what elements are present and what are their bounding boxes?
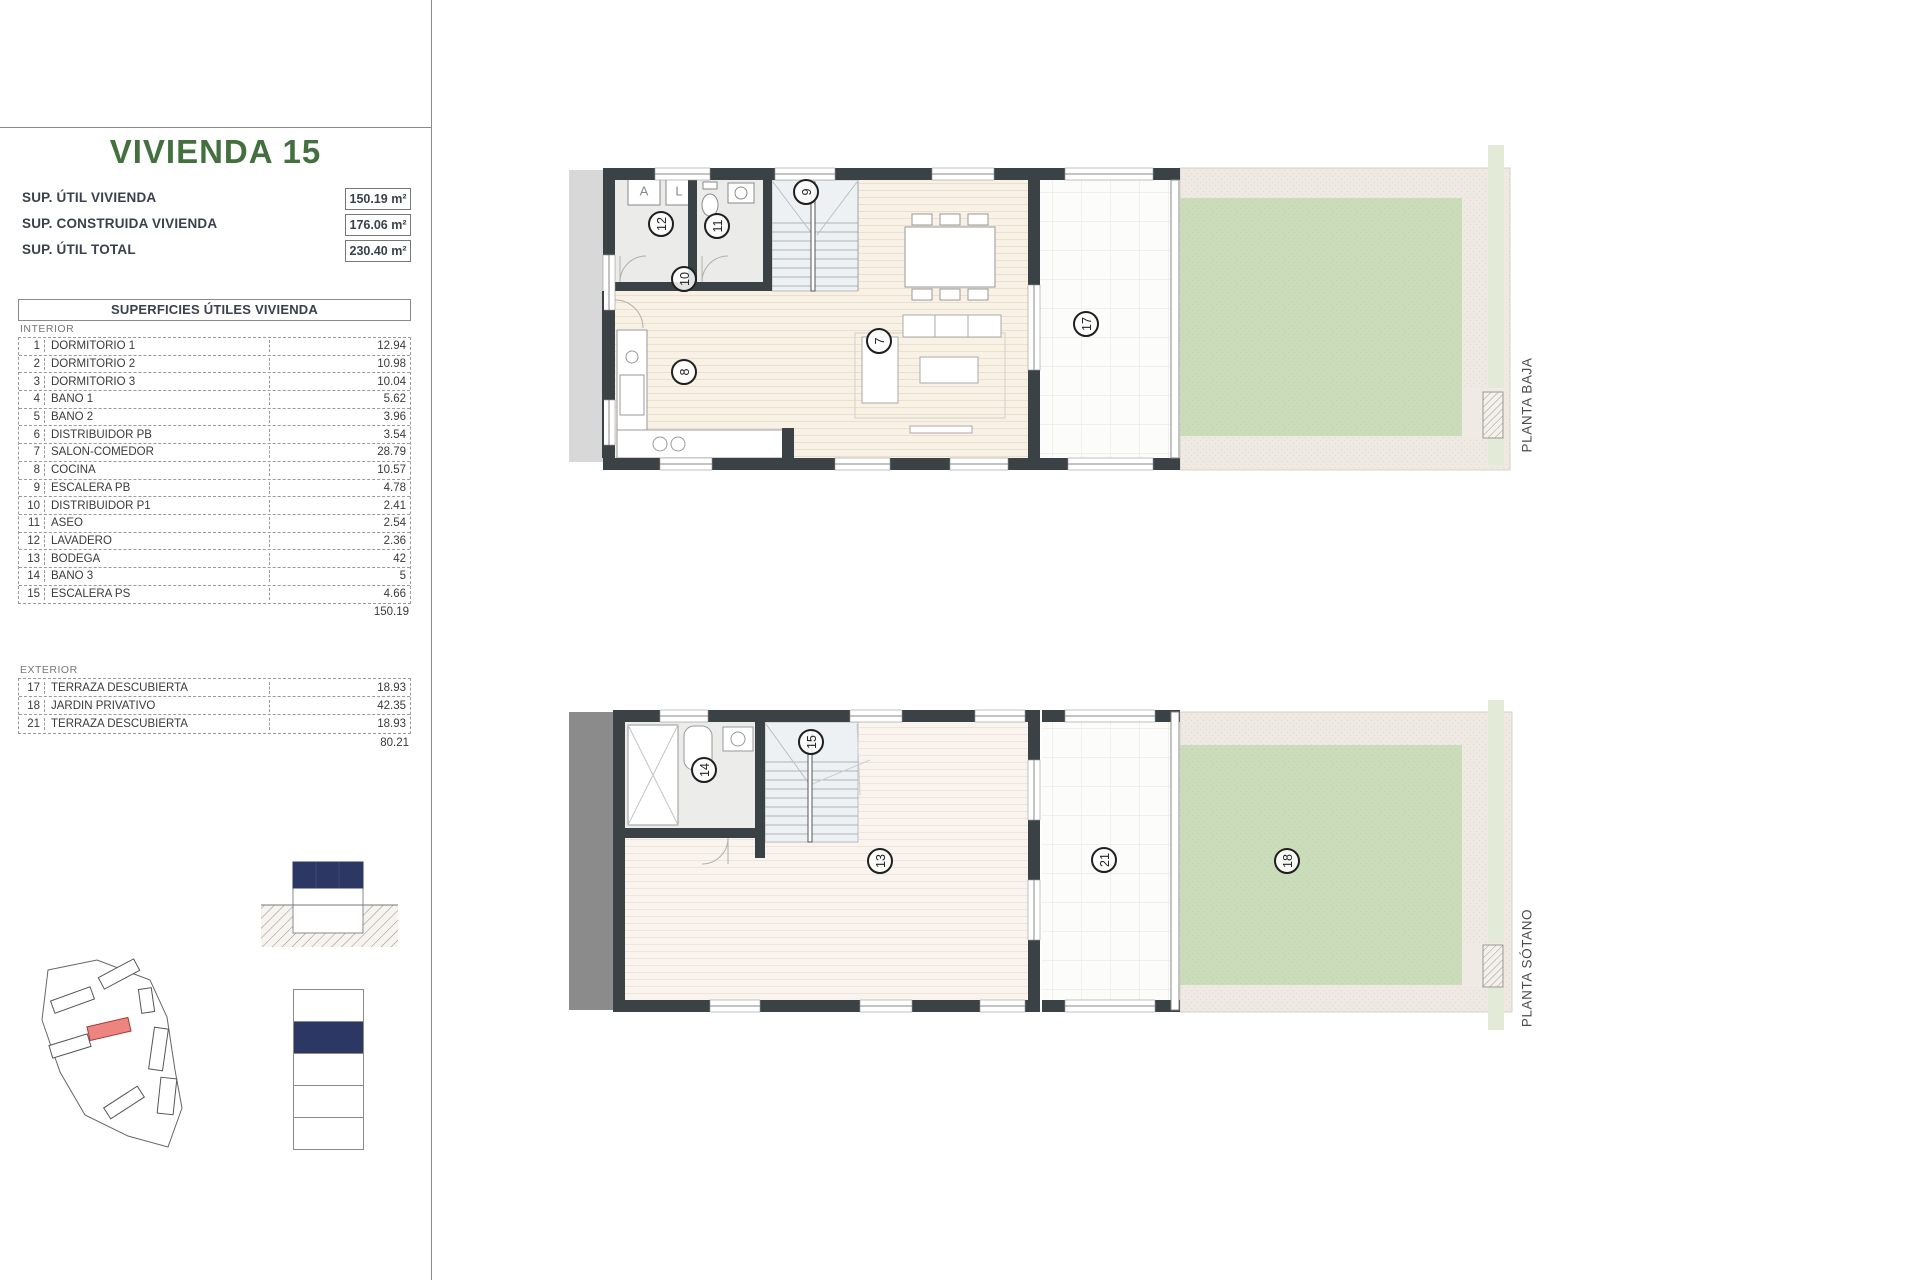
table-row: 5BAÑO 23.96 [19,409,410,427]
room-area: 3.54 [270,429,410,441]
dining-set [905,214,995,300]
room-area: 18.93 [270,682,410,694]
room-name: TERRAZA DESCUBIERTA [45,682,270,694]
row-number: 18 [19,700,45,712]
room-marker-14: 14 [691,757,717,783]
table-row: 7SALÓN-COMEDOR28.79 [19,444,410,462]
header-divider [0,127,431,128]
row-number: 4 [19,393,45,405]
table-row: 2DORMITORIO 210.98 [19,356,410,374]
summary-value-total: 230.40 m² [345,240,411,262]
hatched-block [1483,945,1503,987]
surfaces-table-header: SUPERFICIES ÚTILES VIVIENDA [18,299,411,321]
room-area: 3.96 [270,411,410,423]
section-highlight-floor [293,862,363,888]
table-row: 8COCINA10.57 [19,462,410,480]
washer-label: A [640,184,649,199]
room-name: DORMITORIO 2 [45,358,270,370]
terrace-floor [1040,180,1180,458]
room-name: COCINA [45,464,270,476]
exterior-total: 80.21 [18,737,413,749]
hatched-block [1483,392,1503,438]
table-row: 21TERRAZA DESCUBIERTA18.93 [19,715,410,733]
plan-sheet: VIVIENDA 15 SUP. ÚTIL VIVIENDA SUP. CONS… [0,0,1920,1280]
room-area: 42 [270,553,410,565]
summary-label-construida: SUP. CONSTRUIDA VIVIENDA [22,216,217,231]
garden-area [1173,745,1462,985]
room-marker-12: 12 [648,211,674,237]
row-number: 5 [19,411,45,423]
laundry-label: L [675,184,682,199]
table-row: 11ASEO2.54 [19,515,410,533]
table-row: 12LAVADERO2.36 [19,533,410,551]
room-area: 10.57 [270,464,410,476]
room-area: 18.93 [270,718,410,730]
planta-sotano-label: PLANTA SÓTANO [1520,909,1535,1027]
room-name: DISTRIBUIDOR PB [45,429,270,441]
exterior-section-label: EXTERIOR [20,664,78,676]
table-row: 3DORMITORIO 310.04 [19,373,410,391]
room-marker-15: 15 [798,729,824,755]
room-marker-10: 10 [671,266,697,292]
row-number: 6 [19,429,45,441]
table-row: 15ESCALERA PS4.66 [19,586,410,604]
garden-area [1173,198,1462,436]
summary-label-util: SUP. ÚTIL VIVIENDA [22,190,156,205]
terrace-balustrade [1171,712,1179,1010]
row-number: 17 [19,682,45,694]
room-name: BAÑO 2 [45,411,270,423]
room-area: 5.62 [270,393,410,405]
room-name: ESCALERA PB [45,482,270,494]
room-area: 4.66 [270,588,410,600]
room-marker-11: 11 [704,213,730,239]
row-number: 9 [19,482,45,494]
summary-value-construida: 176.06 m² [345,214,411,236]
row-number: 14 [19,570,45,582]
table-row: 14BAÑO 35 [19,568,410,586]
room-name: LAVADERO [45,535,270,547]
row-number: 13 [19,553,45,565]
site-plan-diagram [28,952,193,1162]
room-name: ESCALERA PS [45,588,270,600]
table-row: 6DISTRIBUIDOR PB3.54 [19,426,410,444]
table-row: 13BODEGA42 [19,550,410,568]
earth-strip [569,712,613,1010]
room-area: 42.35 [270,700,410,712]
room-marker-9: 9 [793,179,819,205]
highlighted-floor-cell [294,1022,364,1054]
table-row: 10DISTRIBUIDOR P12.41 [19,497,410,515]
room-area: 5 [270,570,410,582]
room-name: BAÑO 1 [45,393,270,405]
room-marker-17: 17 [1073,311,1099,337]
floor-stack-diagram [292,988,366,1152]
planta-baja-label: PLANTA BAJA [1520,358,1535,453]
row-number: 11 [19,517,45,529]
room-name: ASEO [45,517,270,529]
interior-section-label: INTERIOR [20,323,74,335]
room-area: 10.04 [270,376,410,388]
room-name: SALÓN-COMEDOR [45,446,270,458]
sidebar-divider [431,0,432,1280]
neighbor-strip [569,170,603,462]
table-row: 1DORMITORIO 112.94 [19,338,410,356]
summary-value-util: 150.19 m² [345,188,411,210]
row-number: 21 [19,718,45,730]
table-row: 17TERRAZA DESCUBIERTA18.93 [19,679,410,697]
section-building-lower [293,888,363,933]
room-name: BAÑO 3 [45,570,270,582]
room-name: DORMITORIO 3 [45,376,270,388]
planta-baja-drawing [560,135,1550,485]
room-marker-7: 7 [866,328,892,354]
page-title: VIVIENDA 15 [0,133,431,171]
room-marker-18: 18 [1274,848,1300,874]
interior-table: 1DORMITORIO 112.94 2DORMITORIO 210.98 3D… [18,337,411,604]
room-area: 28.79 [270,446,410,458]
exterior-table: 17TERRAZA DESCUBIERTA18.93 18JARDÍN PRIV… [18,678,411,734]
row-number: 15 [19,588,45,600]
room-name: JARDÍN PRIVATIVO [45,700,270,712]
section-key-diagram [250,850,410,960]
table-row: 9ESCALERA PB4.78 [19,480,410,498]
room-marker-8: 8 [671,359,697,385]
row-number: 10 [19,500,45,512]
terrace-balustrade [1171,180,1179,458]
row-number: 12 [19,535,45,547]
room-name: BODEGA [45,553,270,565]
table-row: 18JARDÍN PRIVATIVO42.35 [19,697,410,715]
row-number: 8 [19,464,45,476]
summary-label-total: SUP. ÚTIL TOTAL [22,242,136,257]
planta-sotano-drawing [560,700,1550,1030]
row-number: 3 [19,376,45,388]
room-name: TERRAZA DESCUBIERTA [45,718,270,730]
row-number: 1 [19,340,45,352]
room-name: DORMITORIO 1 [45,340,270,352]
row-number: 2 [19,358,45,370]
interior-total: 150.19 [18,606,413,618]
room-marker-13: 13 [867,848,893,874]
room-area: 4.78 [270,482,410,494]
room-area: 2.36 [270,535,410,547]
table-row: 4BAÑO 15.62 [19,391,410,409]
room-area: 12.94 [270,340,410,352]
room-marker-21: 21 [1091,847,1117,873]
room-area: 2.54 [270,517,410,529]
row-number: 7 [19,446,45,458]
room-area: 2.41 [270,500,410,512]
room-name: DISTRIBUIDOR P1 [45,500,270,512]
room-area: 10.98 [270,358,410,370]
